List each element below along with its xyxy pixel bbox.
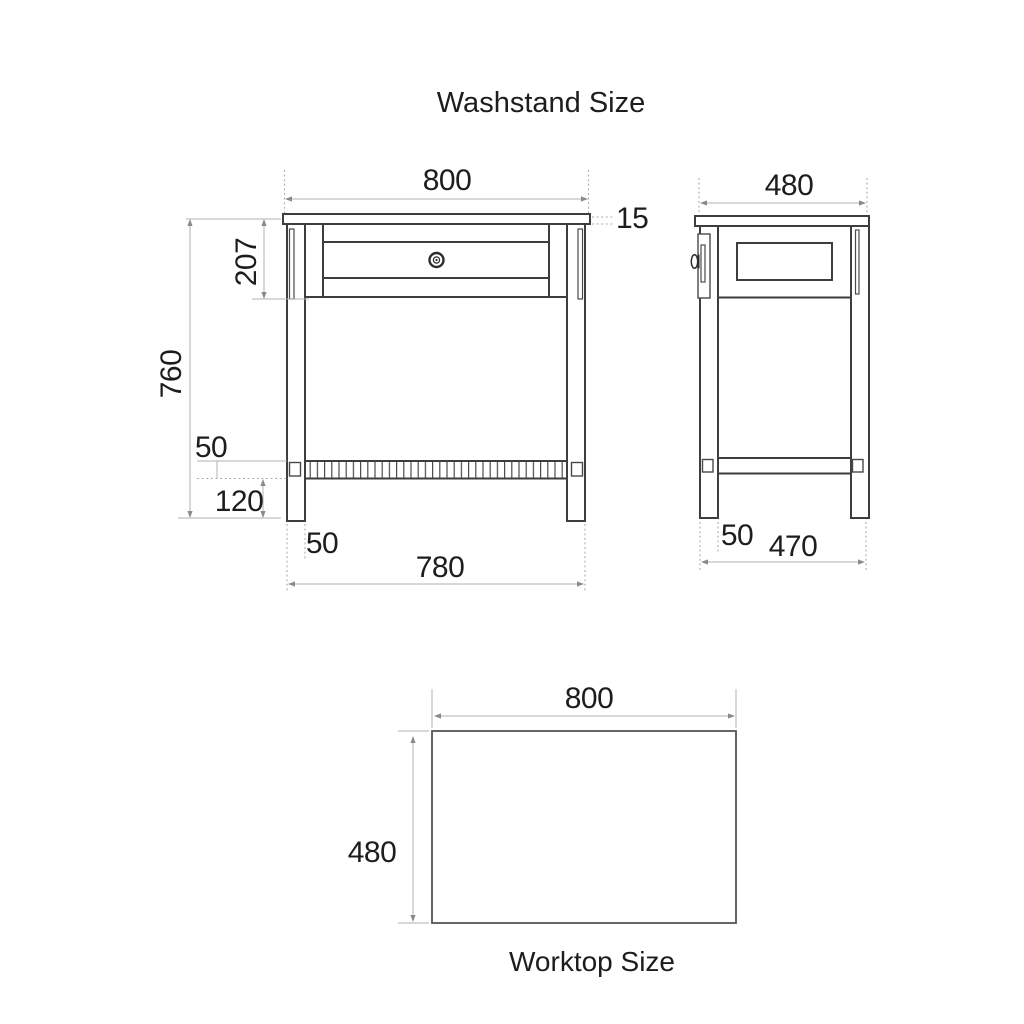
side-rear-leg [851,226,869,518]
side-inset-panel [737,243,832,280]
front-dim-shelf-clearance: 120 [215,479,266,518]
worktop-depth-value: 480 [348,836,397,869]
worktop-outline [432,731,736,923]
front-shelf-thickness-value: 50 [195,431,227,464]
front-worktop-panel [283,214,590,224]
front-drawer-height-value: 207 [230,238,263,287]
washstand-technical-drawing: Washstand Size [0,0,1024,1024]
front-top-thickness-value: 15 [616,202,648,235]
side-worktop-panel [695,216,869,226]
front-shelf-tenon-right [572,463,583,477]
worktop-dim-width: 800 [432,682,736,728]
diagram-canvas: Washstand Size [0,0,1024,1024]
worktop-dim-depth: 480 [348,731,429,923]
worktop-width-value: 800 [565,682,614,715]
worktop-plan-view: 800 480 Worktop Size [348,682,736,977]
front-base-width-value: 780 [416,551,465,584]
front-dim-top-width: 800 [285,164,589,213]
front-view: 800 15 207 760 50 [155,164,648,592]
side-dim-leg-width: 50 [718,519,753,552]
side-base-depth-value: 470 [769,530,818,563]
front-shelf [290,461,583,479]
side-dim-top-depth: 480 [699,169,867,214]
side-shelf-rail [703,458,864,474]
drawer-knob-icon [430,253,444,267]
side-leg-width-value: 50 [721,519,753,552]
side-shelf-tenon-front [703,460,714,473]
worktop-caption: Worktop Size [509,946,675,977]
front-shelf-clearance-value: 120 [215,485,264,518]
front-dim-shelf-thickness: 50 [195,431,287,479]
front-shelf-tenon-left [290,463,301,477]
front-overall-height-value: 760 [155,350,188,399]
front-dim-top-thickness: 15 [592,202,648,235]
front-top-width-value: 800 [423,164,472,197]
side-shelf-tenon-rear [853,460,864,473]
side-drawer-front-edge [691,234,710,298]
side-knob-icon [691,255,698,269]
side-view: 480 50 470 [691,169,869,570]
front-leg-width-value: 50 [306,527,338,560]
diagram-title: Washstand Size [437,87,645,119]
side-top-depth-value: 480 [765,169,814,202]
side-drawer-box [718,243,851,298]
